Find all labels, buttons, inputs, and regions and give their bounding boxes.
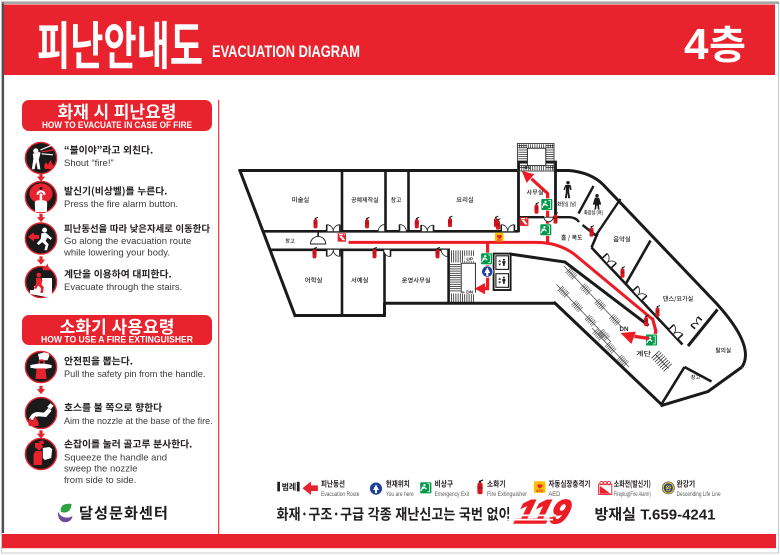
svg-text:Emergency Exit: Emergency Exit bbox=[435, 491, 470, 498]
svg-text:119: 119 bbox=[511, 495, 574, 531]
svg-text:sweep the nozzle: sweep the nozzle bbox=[64, 464, 137, 475]
svg-text:Descending Life Line: Descending Life Line bbox=[677, 491, 721, 498]
svg-text:DN: DN bbox=[466, 289, 473, 295]
svg-text:Aim the nozzle at the base of: Aim the nozzle at the base of the fire. bbox=[64, 416, 213, 426]
svg-text:You are here: You are here bbox=[386, 491, 414, 498]
svg-text:4: 4 bbox=[684, 20, 709, 69]
svg-text:Go along the evacuation route: Go along the evacuation route bbox=[64, 236, 191, 247]
svg-text:T.659-4241: T.659-4241 bbox=[640, 507, 715, 524]
svg-text:AED: AED bbox=[496, 238, 502, 242]
svg-text:AED: AED bbox=[536, 489, 544, 493]
svg-text:HOW TO EVACUATE IN CASE OF FIR: HOW TO EVACUATE IN CASE OF FIRE bbox=[42, 120, 192, 130]
svg-text:EVACUATION DIAGRAM: EVACUATION DIAGRAM bbox=[212, 43, 360, 61]
svg-text:HOW TO USE A FIRE EXTINGUISHER: HOW TO USE A FIRE EXTINGUISHER bbox=[41, 335, 194, 345]
svg-text:Pull the safety pin from the h: Pull the safety pin from the handle. bbox=[64, 369, 205, 379]
svg-text:from side to side.: from side to side. bbox=[64, 475, 136, 486]
svg-text:Fireplug(Fire Alarm): Fireplug(Fire Alarm) bbox=[614, 491, 651, 498]
svg-text:DN: DN bbox=[620, 326, 629, 333]
svg-text:Shout “fire!”: Shout “fire!” bbox=[64, 158, 114, 169]
svg-text:DN: DN bbox=[524, 165, 530, 170]
svg-text:Evacuation Route: Evacuation Route bbox=[321, 491, 360, 498]
svg-text:UP: UP bbox=[466, 256, 473, 262]
svg-text:Evacuate through the stairs.: Evacuate through the stairs. bbox=[64, 282, 182, 293]
svg-text:Press the fire alarm button.: Press the fire alarm button. bbox=[64, 199, 178, 210]
svg-text:Squeeze the handle and: Squeeze the handle and bbox=[64, 453, 167, 464]
svg-text:while lowering your body.: while lowering your body. bbox=[63, 248, 170, 259]
